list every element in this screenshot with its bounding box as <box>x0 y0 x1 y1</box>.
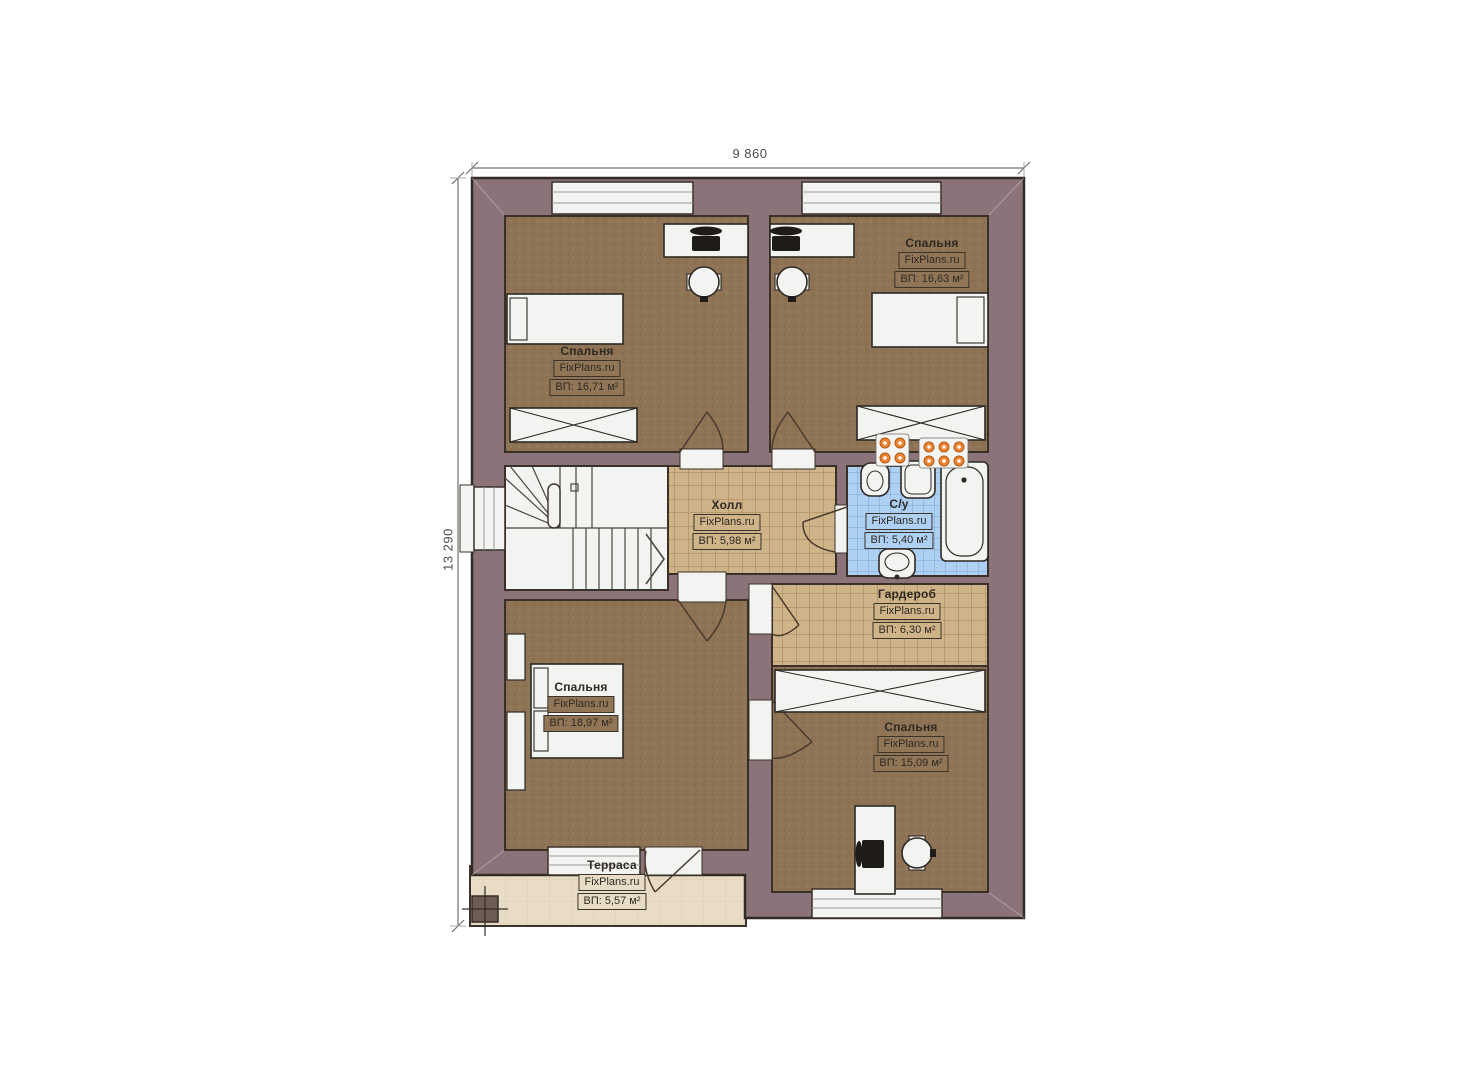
room-area: ВП: 5,57 м² <box>577 893 646 910</box>
room-name: Спальня <box>905 236 958 250</box>
room-area: ВП: 5,98 м² <box>692 533 761 550</box>
room-brand: FixPlans.ru <box>578 874 645 891</box>
room-label-hall: Холл FixPlans.ru ВП: 5,98 м² <box>692 498 761 550</box>
room-area: ВП: 5,40 м² <box>864 532 933 549</box>
closet-icon-top-left <box>510 408 637 442</box>
room-label-bedroom-bottom-left: Спальня FixPlans.ru ВП: 18,97 м² <box>543 680 618 732</box>
room-name: Спальня <box>884 720 937 734</box>
door-gap-bedroom-bottom-right <box>749 700 772 760</box>
room-brand: FixPlans.ru <box>898 252 965 269</box>
door-gap-bedroom-top-left <box>680 449 723 469</box>
room-name: Спальня <box>554 680 607 694</box>
desk-icon-top-left <box>664 224 748 257</box>
room-brand: FixPlans.ru <box>865 513 932 530</box>
toilet-icon <box>879 549 915 580</box>
room-label-terrace: Терраса FixPlans.ru ВП: 5,57 м² <box>577 858 646 910</box>
bed-icon-top-right <box>872 293 988 347</box>
room-name: Спальня <box>560 344 613 358</box>
room-area: ВП: 16,71 м² <box>549 379 624 396</box>
door-gap-terrace <box>645 847 702 875</box>
desk-icon-bottom-right <box>855 806 895 894</box>
room-name: С/у <box>889 497 908 511</box>
room-area: ВП: 15,09 м² <box>873 755 948 772</box>
dimension-height-label: 13 290 <box>441 513 456 587</box>
room-area: ВП: 18,97 м² <box>543 715 618 732</box>
closet-icon-bottom-right <box>775 670 985 712</box>
window-top-left <box>552 182 693 214</box>
room-area: ВП: 6,30 м² <box>872 622 941 639</box>
room-brand: FixPlans.ru <box>873 603 940 620</box>
room-name: Холл <box>712 498 743 512</box>
desk-icon-top-right <box>770 224 854 257</box>
room-brand: FixPlans.ru <box>547 696 614 713</box>
room-name: Терраса <box>587 858 637 872</box>
dimension-width-label: 9 860 <box>700 146 800 161</box>
nightstand-icon-left-2 <box>507 712 525 790</box>
door-gap-bathroom <box>835 505 847 553</box>
room-label-bedroom-bottom-right: Спальня FixPlans.ru ВП: 15,09 м² <box>873 720 948 772</box>
room-brand: FixPlans.ru <box>877 736 944 753</box>
radiator-icons <box>876 434 968 468</box>
window-left <box>474 487 505 550</box>
room-label-wardrobe: Гардероб FixPlans.ru ВП: 6,30 м² <box>872 587 941 639</box>
bed-icon-top-left <box>507 294 623 344</box>
floor-plan-canvas: 9 860 13 290 Спальня FixPlans.ru ВП: 16,… <box>0 0 1473 1080</box>
door-gap-bedroom-top-right <box>772 449 815 469</box>
room-label-bathroom: С/у FixPlans.ru ВП: 5,40 м² <box>864 497 933 549</box>
stair-rail <box>548 484 560 528</box>
door-gap-bedroom-bottom-left <box>678 572 726 602</box>
room-area: ВП: 16,63 м² <box>894 271 969 288</box>
nightstand-icon-left-1 <box>507 634 525 680</box>
room-brand: FixPlans.ru <box>693 514 760 531</box>
window-top-right <box>802 182 941 214</box>
room-label-bedroom-top-right: Спальня FixPlans.ru ВП: 16,63 м² <box>894 236 969 288</box>
room-brand: FixPlans.ru <box>553 360 620 377</box>
bidet-icon <box>861 463 889 496</box>
door-gap-wardrobe <box>749 584 772 634</box>
room-label-bedroom-top-left: Спальня FixPlans.ru ВП: 16,71 м² <box>549 344 624 396</box>
room-name: Гардероб <box>878 587 936 601</box>
window-left-sill <box>460 485 474 552</box>
bathtub-icon <box>941 462 988 561</box>
